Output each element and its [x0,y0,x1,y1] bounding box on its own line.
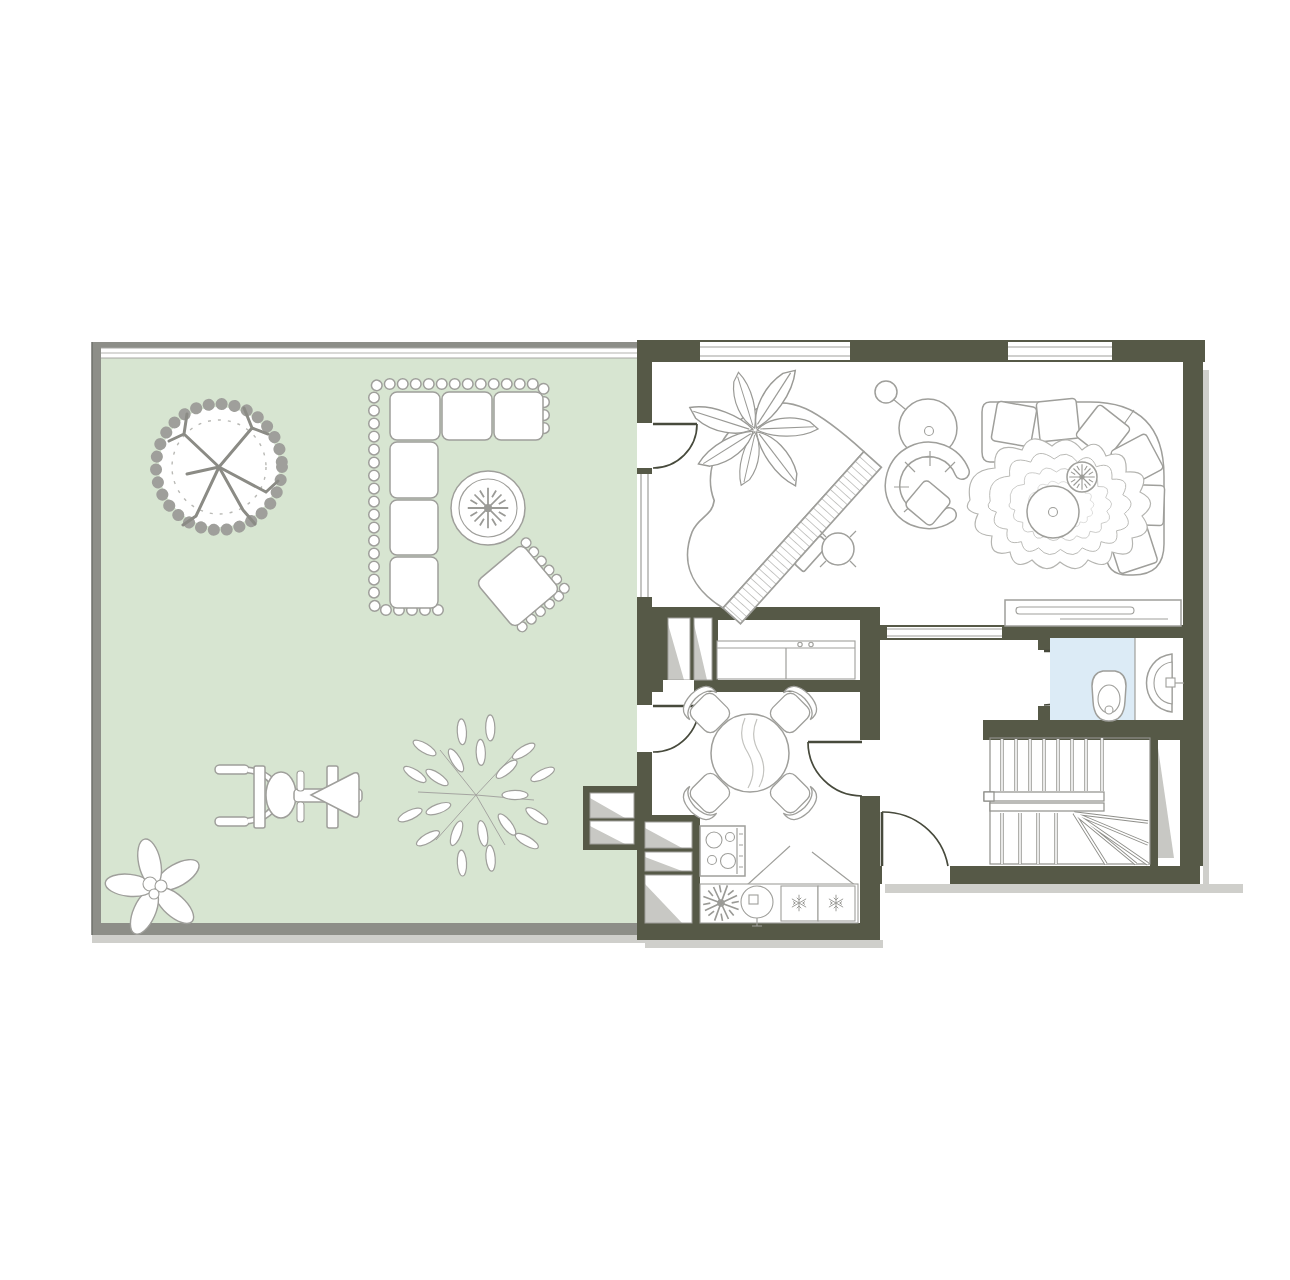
pantry-counter [717,641,855,679]
coffee-table [1027,486,1079,538]
vent-shaft [668,618,690,680]
armchair [893,449,962,527]
stove [700,826,745,876]
rider-stirrup [297,802,304,822]
terrace-fence [92,342,638,358]
rider-handle [215,817,249,826]
kitchen [697,826,858,927]
door-dining-hallway [808,740,880,796]
rider-handle [215,765,249,774]
vent-shaft [694,618,712,680]
interior-window [887,627,1002,638]
stair-flight-upper [1002,738,1102,791]
bathroom-sink [1147,654,1185,712]
floor-plan [0,0,1290,1280]
terrace-border-left [92,342,101,935]
staircase [984,738,1150,864]
terrace-garden [92,342,640,938]
wall-bathroom-top [1048,625,1183,638]
pantry [717,641,855,679]
sofa-cushion [442,392,492,440]
sofa-cushion [1036,398,1080,442]
terrace-border-bottom [92,923,640,935]
fridge [781,886,818,921]
door-living-terrace [637,423,697,468]
terrace-tree [156,404,282,530]
vent-shaft [645,875,692,923]
wall-right [1183,362,1203,740]
rider-post [254,766,265,828]
living-room [637,363,1181,633]
sofa-cushion [390,392,440,440]
window-living-room-1 [700,342,850,360]
floor-plan-page [0,0,1290,1280]
passage-opening [663,680,694,692]
dining-table [711,714,789,792]
sofa-cushion [390,557,438,608]
dining-room [678,681,823,826]
stair-flight-lower [1002,813,1148,864]
rug-plant [1067,462,1097,492]
sofa-cushion [390,500,438,555]
vent-shaft [590,821,634,844]
outdoor-round-table [451,471,525,545]
sofa-cushion [390,442,438,498]
counter-break-lines [746,846,856,886]
vent-shaft [645,822,692,848]
tv-console [1005,600,1181,626]
toilet [1092,671,1126,721]
stair-landing-rail [984,792,1104,811]
door-entrance [882,812,950,884]
freezer [818,886,855,921]
rider-body [266,772,296,818]
piano-stool [820,531,856,567]
sofa-cushion [494,392,543,440]
vent-shaft [645,852,692,871]
vent-shaft [590,793,634,818]
wall-bathroom-bottom [983,720,1203,740]
rider-stirrup [297,771,304,791]
window-terrace-glazing [637,474,652,597]
window-living-room-2 [1008,342,1112,360]
bathroom [1050,638,1184,721]
window-staircase [1158,745,1180,860]
